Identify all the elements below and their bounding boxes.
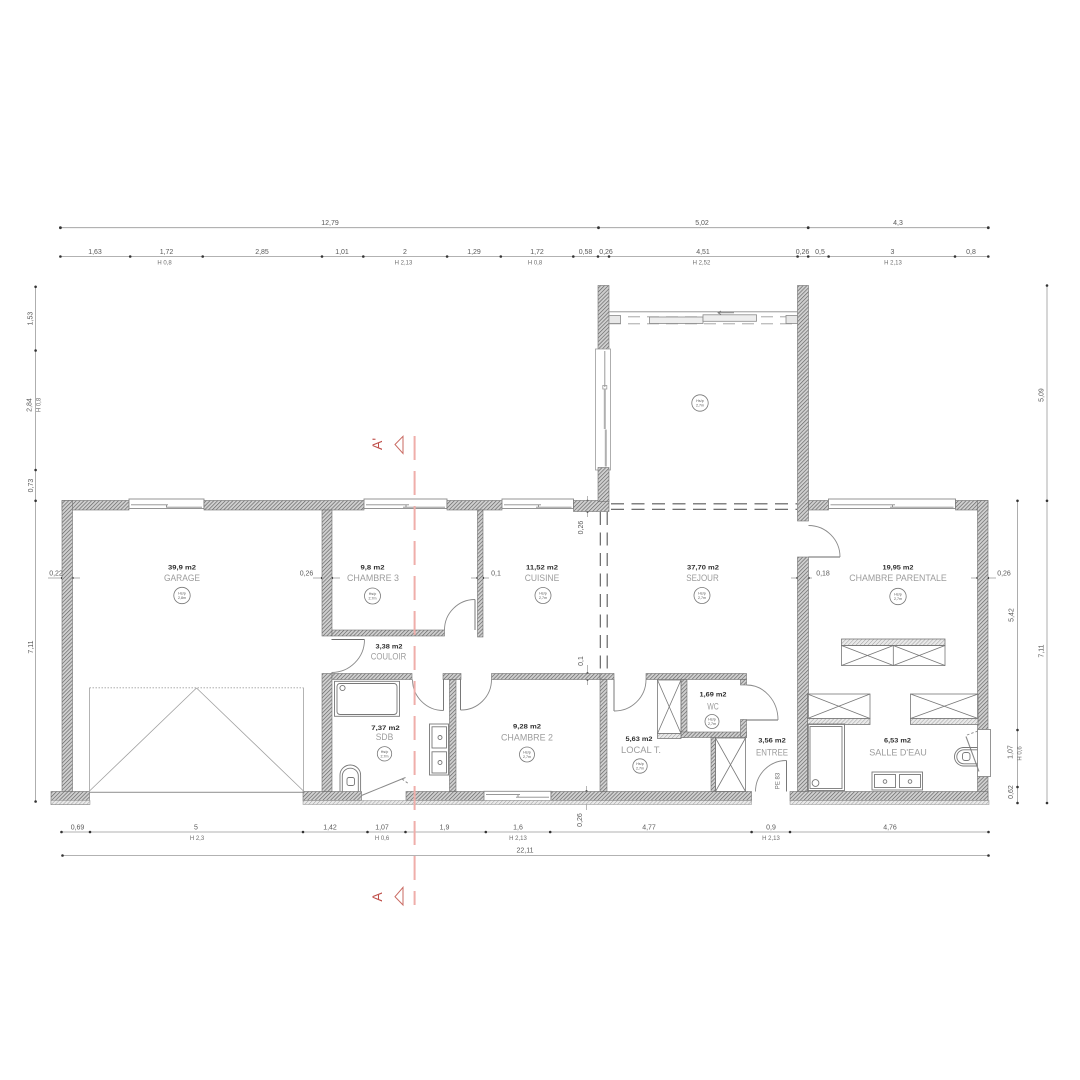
svg-text:H 2,3: H 2,3 [190, 836, 205, 842]
svg-text:5,63 m2: 5,63 m2 [626, 736, 653, 743]
svg-text:4,77: 4,77 [642, 825, 656, 832]
svg-text:11,52 m2: 11,52 m2 [526, 564, 558, 571]
svg-text:SALLE D'EAU: SALLE D'EAU [869, 748, 927, 758]
svg-text:22,11: 22,11 [517, 848, 534, 855]
svg-text:2,7m: 2,7m [381, 754, 389, 758]
svg-text:A': A' [369, 438, 385, 450]
svg-text:19,95 m2: 19,95 m2 [883, 564, 914, 571]
svg-text:7,37 m2: 7,37 m2 [371, 725, 400, 732]
svg-text:0,9: 0,9 [766, 825, 776, 832]
svg-text:5,42: 5,42 [1009, 608, 1016, 622]
svg-text:2,7m: 2,7m [636, 767, 644, 771]
svg-text:2,84: 2,84 [27, 398, 34, 412]
svg-text:0,22: 0,22 [49, 571, 63, 578]
svg-text:PE 83: PE 83 [776, 772, 782, 789]
svg-text:3: 3 [891, 249, 895, 256]
svg-text:4,3: 4,3 [893, 220, 903, 227]
svg-text:2,7m: 2,7m [698, 596, 706, 600]
svg-text:1,6: 1,6 [513, 825, 523, 832]
svg-text:0,26: 0,26 [599, 249, 613, 256]
svg-text:Hs/p: Hs/p [708, 718, 715, 722]
svg-text:1,63: 1,63 [88, 249, 102, 256]
svg-text:5,09: 5,09 [1039, 388, 1046, 402]
svg-text:Hs/p: Hs/p [698, 592, 705, 596]
svg-text:12,79: 12,79 [321, 220, 339, 227]
svg-text:SEJOUR: SEJOUR [686, 573, 719, 583]
svg-text:H 2,52: H 2,52 [693, 261, 711, 267]
svg-text:H 0,8: H 0,8 [157, 261, 172, 267]
svg-text:Hs/p: Hs/p [636, 762, 643, 766]
svg-text:2,7m: 2,7m [369, 597, 377, 601]
svg-text:5,02: 5,02 [695, 220, 709, 227]
svg-text:6,53 m2: 6,53 m2 [884, 738, 911, 745]
svg-text:1,72: 1,72 [530, 249, 544, 256]
svg-text:1,07: 1,07 [1008, 745, 1015, 759]
svg-text:H 0,6: H 0,6 [375, 836, 390, 842]
svg-text:37,70 m2: 37,70 m2 [687, 564, 719, 571]
svg-text:0,69: 0,69 [71, 825, 85, 832]
svg-text:SDB: SDB [376, 732, 394, 742]
svg-text:2,8m: 2,8m [178, 596, 186, 600]
svg-text:2,7m: 2,7m [523, 755, 531, 759]
svg-text:2,7m: 2,7m [708, 722, 716, 726]
svg-text:1,9: 1,9 [440, 825, 450, 832]
svg-text:0,62: 0,62 [1008, 785, 1015, 799]
svg-text:2,7m: 2,7m [539, 596, 547, 600]
svg-text:CHAMBRE 3: CHAMBRE 3 [347, 573, 399, 583]
svg-text:1,53: 1,53 [28, 312, 35, 326]
svg-text:0,5: 0,5 [815, 249, 825, 256]
svg-text:0,8: 0,8 [966, 249, 976, 256]
svg-text:GARAGE: GARAGE [164, 573, 200, 583]
svg-text:0,26: 0,26 [796, 249, 810, 256]
svg-text:39,9 m2: 39,9 m2 [168, 564, 196, 571]
svg-text:Hs/p: Hs/p [696, 399, 703, 403]
svg-text:4,51: 4,51 [696, 249, 710, 256]
svg-text:1,69 m2: 1,69 m2 [700, 692, 727, 699]
svg-text:Hs/p: Hs/p [178, 592, 185, 596]
svg-text:Hs/p: Hs/p [523, 751, 530, 755]
svg-text:2,85: 2,85 [255, 249, 269, 256]
svg-text:CHAMBRE 2: CHAMBRE 2 [501, 733, 553, 743]
svg-text:0,73: 0,73 [28, 479, 35, 493]
svg-text:Hs/p: Hs/p [381, 750, 388, 754]
svg-text:H 2,13: H 2,13 [509, 836, 527, 842]
svg-text:4,76: 4,76 [883, 825, 897, 832]
svg-text:H 2,13: H 2,13 [884, 261, 902, 267]
svg-text:H 2,13: H 2,13 [395, 261, 413, 267]
svg-text:0,26: 0,26 [997, 571, 1011, 578]
svg-text:H 0,8: H 0,8 [528, 261, 543, 267]
svg-text:1,01: 1,01 [335, 249, 349, 256]
svg-text:CUISINE: CUISINE [525, 573, 560, 583]
svg-text:1,42: 1,42 [323, 825, 337, 832]
svg-text:1,29: 1,29 [467, 249, 481, 256]
svg-text:9,8 m2: 9,8 m2 [361, 564, 385, 571]
svg-text:Hs/p: Hs/p [894, 593, 901, 597]
svg-text:5: 5 [194, 825, 198, 832]
svg-text:ENTREE: ENTREE [756, 748, 788, 758]
svg-text:9,28 m2: 9,28 m2 [513, 724, 541, 731]
svg-text:0,26: 0,26 [300, 571, 314, 578]
svg-text:0,1: 0,1 [578, 656, 585, 666]
svg-text:2,7m: 2,7m [894, 597, 902, 601]
svg-text:7,11: 7,11 [1039, 644, 1046, 657]
svg-text:1,07: 1,07 [375, 825, 389, 832]
svg-text:3,38 m2: 3,38 m2 [376, 644, 403, 651]
svg-text:H 2,13: H 2,13 [762, 836, 780, 842]
svg-text:WC: WC [707, 702, 719, 712]
svg-text:Hs/p: Hs/p [369, 592, 376, 596]
svg-text:H 0,8: H 0,8 [37, 397, 43, 412]
svg-text:0,1: 0,1 [491, 571, 501, 578]
svg-text:2: 2 [403, 249, 407, 256]
svg-text:A: A [369, 892, 385, 902]
svg-text:1,72: 1,72 [160, 249, 174, 256]
svg-text:0,18: 0,18 [816, 571, 830, 578]
svg-text:3,56 m2: 3,56 m2 [758, 738, 786, 745]
svg-text:LOCAL T.: LOCAL T. [621, 745, 661, 755]
svg-text:Hs/p: Hs/p [539, 592, 546, 596]
svg-text:2,7m: 2,7m [696, 404, 704, 408]
svg-text:CHAMBRE PARENTALE: CHAMBRE PARENTALE [849, 573, 947, 583]
svg-text:0,26: 0,26 [577, 813, 584, 827]
svg-text:H 0,6: H 0,6 [1018, 746, 1024, 761]
svg-text:0,26: 0,26 [578, 521, 585, 535]
svg-text:7,11: 7,11 [28, 640, 35, 653]
svg-text:COULOIR: COULOIR [371, 652, 407, 662]
svg-text:0,58: 0,58 [579, 249, 593, 256]
